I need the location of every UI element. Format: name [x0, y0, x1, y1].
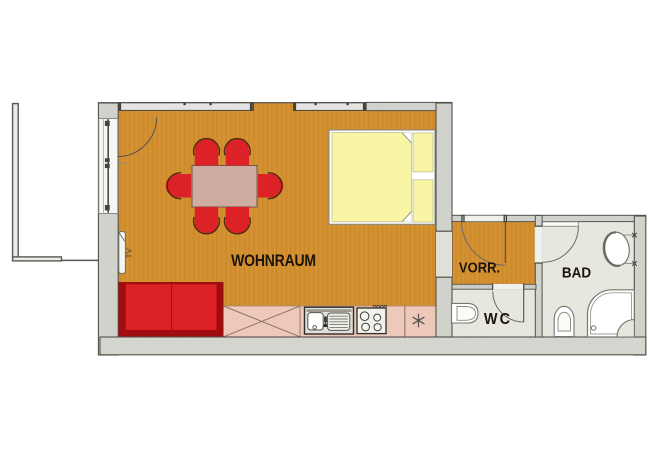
svg-text:BAD: BAD: [562, 265, 591, 282]
svg-text:WOHNRAUM: WOHNRAUM: [231, 252, 316, 270]
svg-text:TV: TV: [125, 248, 134, 259]
svg-text:WC: WC: [484, 311, 512, 329]
svg-text:VORR.: VORR.: [459, 260, 500, 276]
